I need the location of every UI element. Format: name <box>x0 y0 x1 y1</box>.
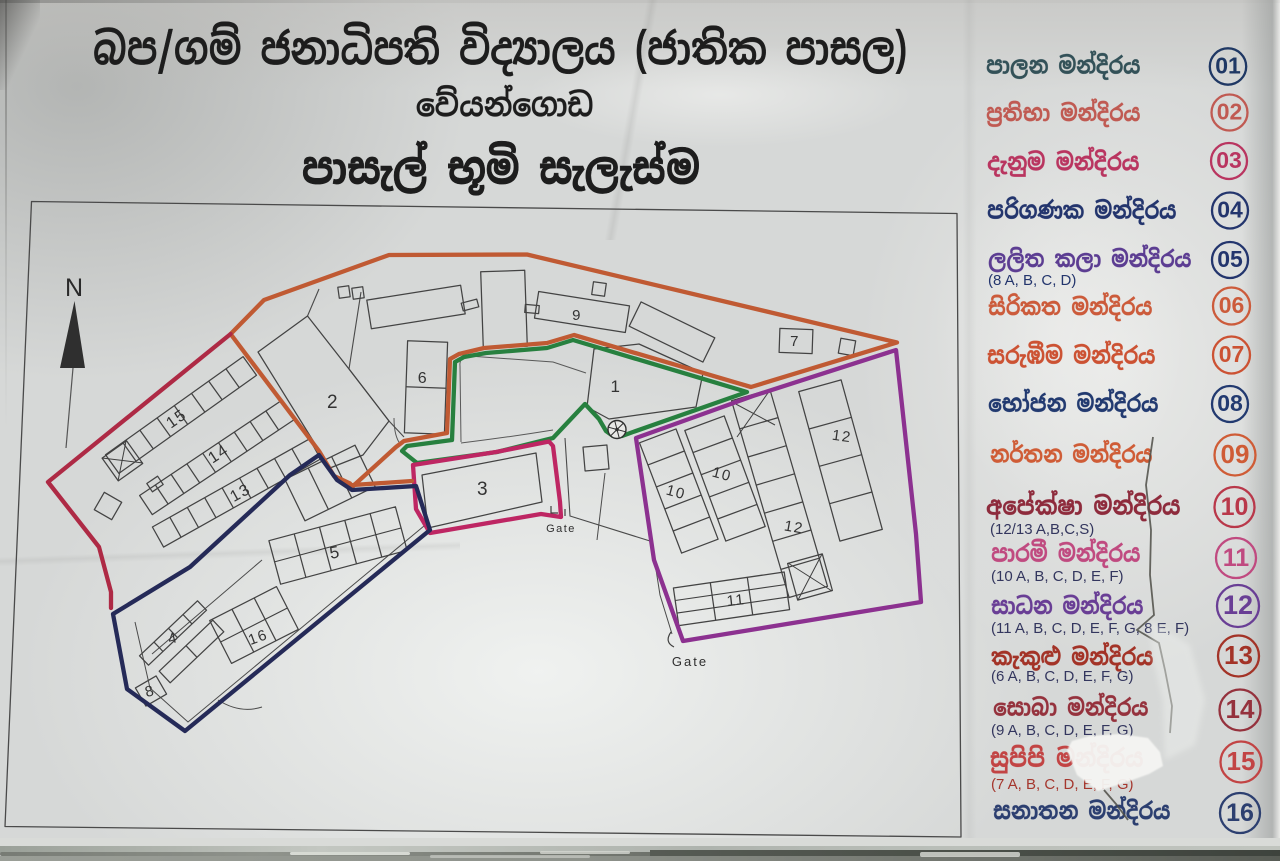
svg-text:10: 10 <box>710 464 733 486</box>
svg-text:12: 12 <box>831 427 853 447</box>
svg-text:07: 07 <box>1219 341 1245 367</box>
svg-text:15: 15 <box>1227 746 1256 776</box>
svg-text:01: 01 <box>1215 53 1241 79</box>
svg-text:03: 03 <box>1216 147 1242 173</box>
svg-text:5: 5 <box>328 542 342 563</box>
svg-text:06: 06 <box>1219 292 1245 318</box>
svg-text:13: 13 <box>1224 640 1253 670</box>
svg-text:N: N <box>65 274 83 302</box>
svg-text:14: 14 <box>1226 694 1255 724</box>
svg-text:04: 04 <box>1217 197 1243 223</box>
svg-text:(8 A, B, C, D): (8 A, B, C, D) <box>988 272 1076 289</box>
svg-text:16: 16 <box>1226 799 1254 827</box>
svg-text:(10 A, B, C, D, E, F): (10 A, B, C, D, E, F) <box>991 568 1124 585</box>
svg-text:(12/13 A,B,C,S): (12/13 A,B,C,S) <box>990 521 1094 538</box>
svg-text:7: 7 <box>790 333 800 350</box>
svg-text:09: 09 <box>1221 439 1250 469</box>
svg-text:12: 12 <box>1223 590 1253 620</box>
svg-text:9: 9 <box>572 307 582 324</box>
svg-text:3: 3 <box>477 479 489 500</box>
svg-text:1: 1 <box>611 377 622 396</box>
svg-text:(6 A, B, C, D, E, F, G): (6 A, B, C, D, E, F, G) <box>991 668 1134 685</box>
svg-text:6: 6 <box>418 370 428 387</box>
svg-text:11: 11 <box>1223 544 1250 572</box>
svg-text:13: 13 <box>228 481 254 506</box>
svg-text:02: 02 <box>1217 99 1243 125</box>
svg-text:Gate: Gate <box>672 654 708 669</box>
svg-text:10: 10 <box>664 482 687 504</box>
svg-text:8: 8 <box>143 682 157 701</box>
svg-text:Gate: Gate <box>546 523 576 535</box>
svg-text:11: 11 <box>726 591 746 610</box>
svg-text:08: 08 <box>1217 390 1243 416</box>
svg-text:2: 2 <box>327 392 339 413</box>
svg-text:12: 12 <box>783 517 805 537</box>
svg-text:05: 05 <box>1217 246 1243 272</box>
svg-text:10: 10 <box>1221 493 1249 521</box>
